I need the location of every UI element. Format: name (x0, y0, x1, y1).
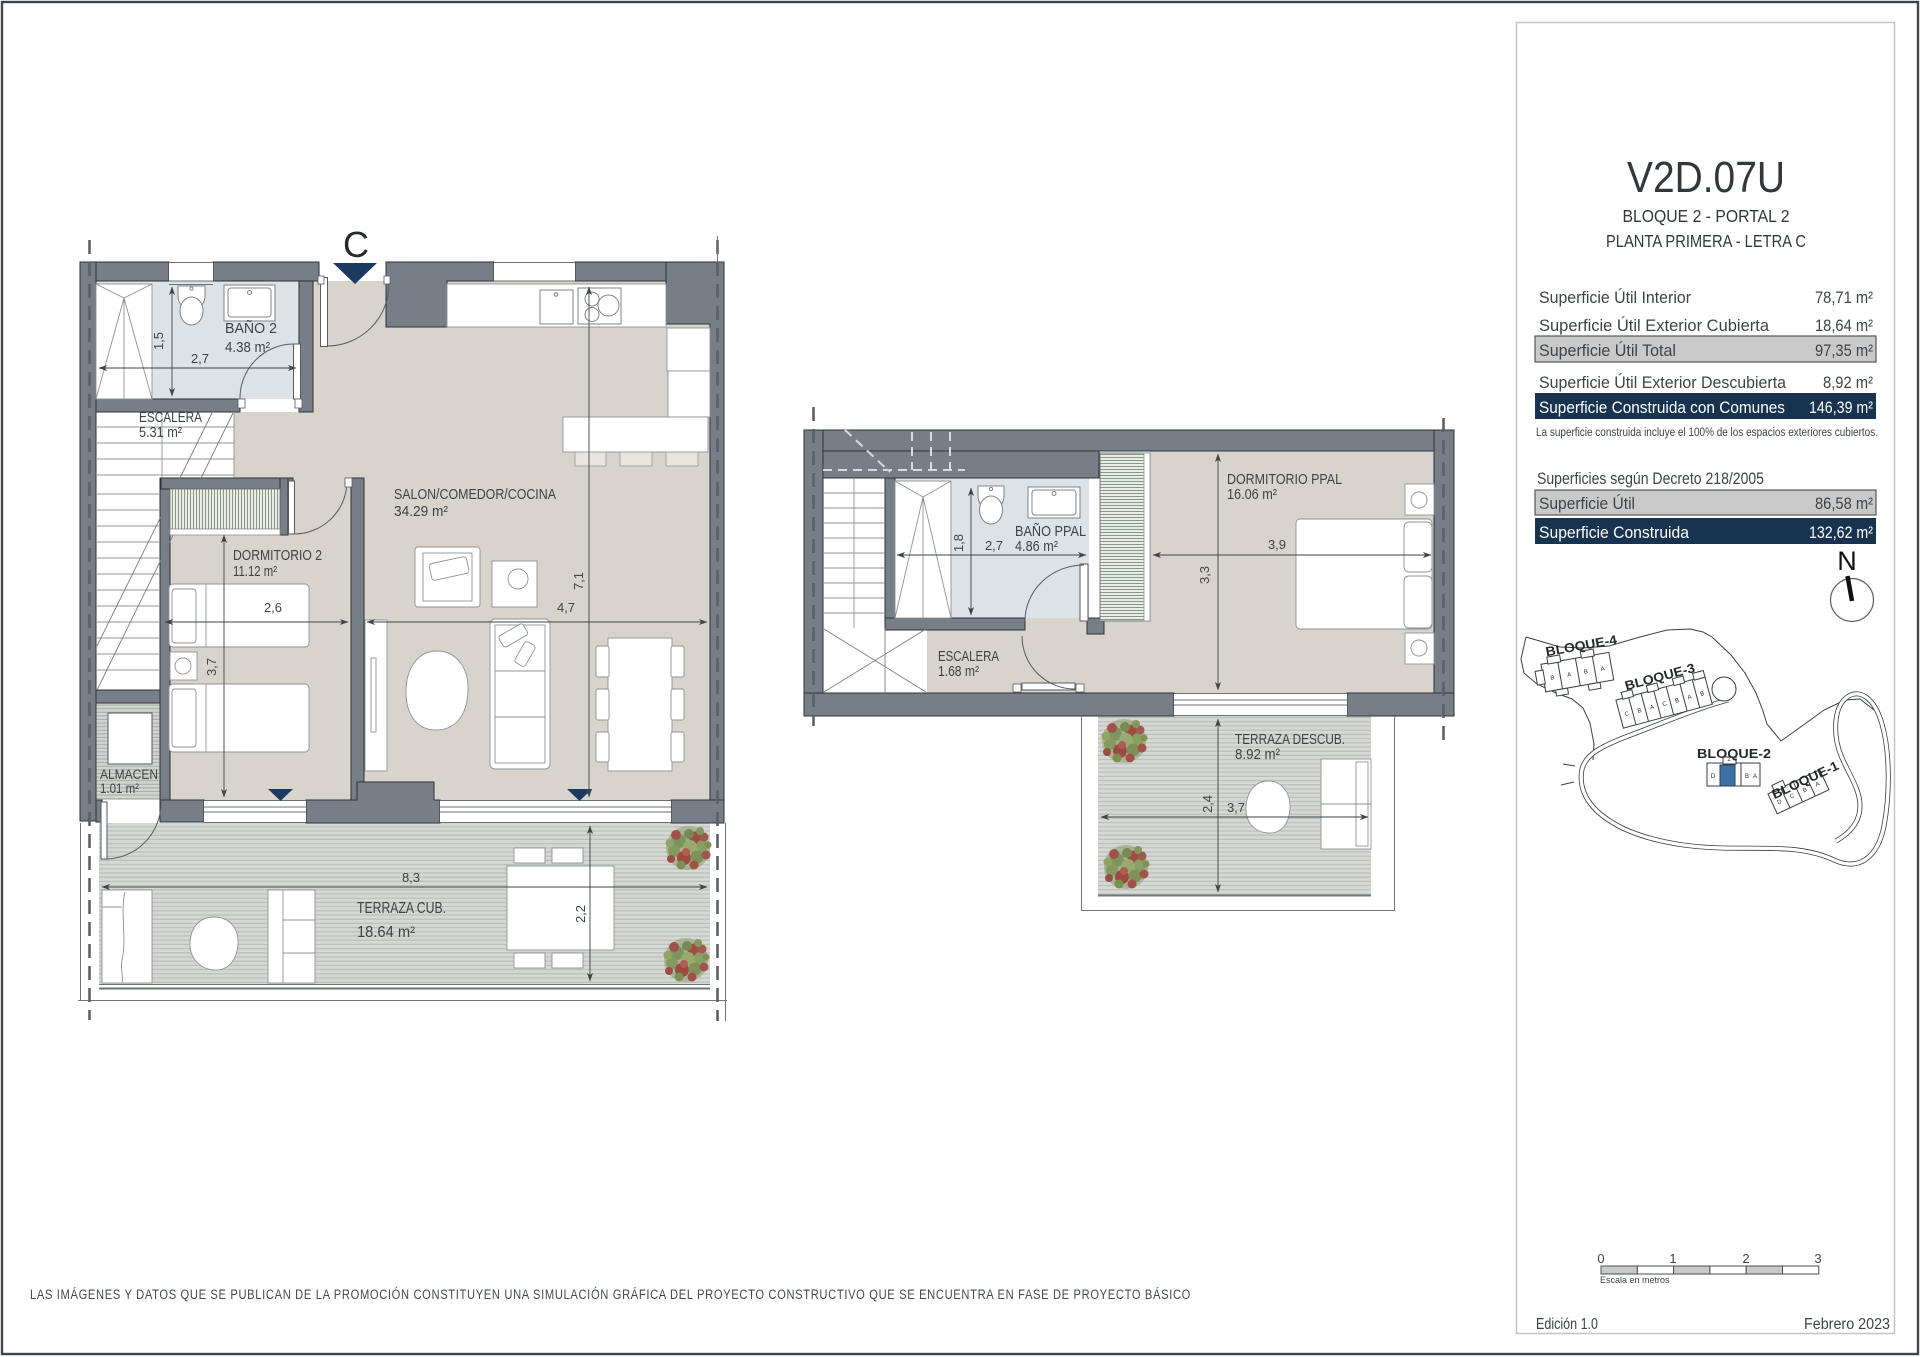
svg-text:11.12 m²: 11.12 m² (233, 564, 277, 580)
svg-text:TERRAZA CUB.: TERRAZA CUB. (357, 900, 446, 917)
svg-text:Febrero 2023: Febrero 2023 (1804, 1316, 1890, 1333)
svg-text:La superficie construida inclu: La superficie construida incluye el 100%… (1536, 427, 1878, 439)
svg-text:ESCALERA: ESCALERA (938, 649, 999, 665)
svg-text:86,58 m²: 86,58 m² (1815, 494, 1873, 513)
svg-text:Superficie Útil Interior: Superficie Útil Interior (1539, 288, 1691, 307)
svg-text:DORMITORIO 2: DORMITORIO 2 (233, 548, 322, 564)
svg-text:5.31 m²: 5.31 m² (139, 425, 182, 441)
svg-text:1: 1 (1669, 1251, 1676, 1266)
svg-text:146,39 m²: 146,39 m² (1809, 398, 1873, 417)
svg-text:18.64 m²: 18.64 m² (357, 924, 415, 941)
svg-text:0: 0 (1597, 1251, 1604, 1266)
svg-text:1.01 m²: 1.01 m² (100, 781, 139, 796)
svg-text:N: N (1837, 546, 1857, 576)
svg-text:ALMACEN: ALMACEN (100, 767, 158, 782)
svg-text:D: D (1711, 774, 1716, 780)
svg-text:3: 3 (1814, 1251, 1821, 1266)
svg-text:8,92 m²: 8,92 m² (1823, 373, 1873, 392)
svg-text:V2D.07U: V2D.07U (1627, 153, 1785, 202)
svg-text:97,35 m²: 97,35 m² (1815, 341, 1873, 360)
svg-text:BAÑO 2: BAÑO 2 (225, 320, 277, 337)
svg-text:4.38 m²: 4.38 m² (225, 340, 270, 356)
svg-text:SALON/COMEDOR/COCINA: SALON/COMEDOR/COCINA (394, 487, 556, 503)
svg-text:16.06 m²: 16.06 m² (1227, 487, 1277, 503)
svg-text:Escala en metros: Escala en metros (1600, 1275, 1670, 1285)
svg-text:Superficie Útil Total: Superficie Útil Total (1539, 341, 1676, 360)
svg-text:7,1: 7,1 (571, 572, 586, 590)
svg-text:2: 2 (1742, 1251, 1749, 1266)
svg-text:BLOQUE 2 - PORTAL 2: BLOQUE 2 - PORTAL 2 (1623, 206, 1790, 226)
svg-text:Superficie Útil: Superficie Útil (1539, 494, 1635, 513)
svg-text:2,4: 2,4 (1200, 795, 1215, 813)
svg-text:3,3: 3,3 (1197, 566, 1212, 584)
svg-text:3,7: 3,7 (204, 658, 219, 676)
svg-text:Superficie Útil Exterior Cubie: Superficie Útil Exterior Cubierta (1539, 316, 1770, 335)
svg-text:LAS IMÁGENES Y DATOS QUE SE PU: LAS IMÁGENES Y DATOS QUE SE PUBLICAN DE … (30, 1287, 1191, 1302)
svg-text:DORMITORIO PPAL: DORMITORIO PPAL (1227, 472, 1342, 488)
svg-text:78,71 m²: 78,71 m² (1815, 288, 1873, 307)
svg-text:2,7: 2,7 (985, 538, 1003, 553)
svg-text:1.68 m²: 1.68 m² (938, 664, 979, 680)
svg-text:8.92 m²: 8.92 m² (1235, 746, 1280, 763)
svg-text:Edición 1.0: Edición 1.0 (1536, 1316, 1598, 1333)
svg-text:2,6: 2,6 (264, 600, 282, 615)
svg-text:Superficies según Decreto 218/: Superficies según Decreto 218/2005 (1537, 470, 1764, 488)
svg-text:BAÑO PPAL: BAÑO PPAL (1015, 523, 1086, 540)
svg-text:8,3: 8,3 (402, 870, 420, 885)
svg-text:B: B (1745, 774, 1749, 780)
svg-text:2,2: 2,2 (573, 905, 588, 923)
svg-text:2,7: 2,7 (191, 351, 209, 366)
svg-text:Superficie Construida: Superficie Construida (1539, 523, 1690, 542)
svg-text:Superficie Construida con Comu: Superficie Construida con Comunes (1539, 398, 1785, 417)
svg-text:1,8: 1,8 (951, 534, 966, 552)
svg-text:C: C (343, 224, 369, 265)
svg-text:3,7: 3,7 (1227, 800, 1245, 815)
svg-text:34.29 m²: 34.29 m² (394, 504, 448, 520)
svg-text:A: A (1753, 774, 1757, 780)
svg-text:18,64 m²: 18,64 m² (1815, 316, 1873, 335)
svg-text:4.86 m²: 4.86 m² (1015, 539, 1058, 555)
svg-text:Superficie Útil Exterior Descu: Superficie Útil Exterior Descubierta (1539, 373, 1787, 392)
svg-text:4,7: 4,7 (557, 600, 575, 615)
svg-text:PLANTA PRIMERA - LETRA C: PLANTA PRIMERA - LETRA C (1606, 231, 1806, 251)
svg-text:1,5: 1,5 (151, 332, 166, 350)
svg-text:132,62 m²: 132,62 m² (1809, 523, 1873, 542)
svg-text:BLOQUE-2: BLOQUE-2 (1697, 746, 1771, 761)
svg-text:3,9: 3,9 (1268, 537, 1286, 552)
svg-text:ESCALERA: ESCALERA (139, 410, 202, 426)
